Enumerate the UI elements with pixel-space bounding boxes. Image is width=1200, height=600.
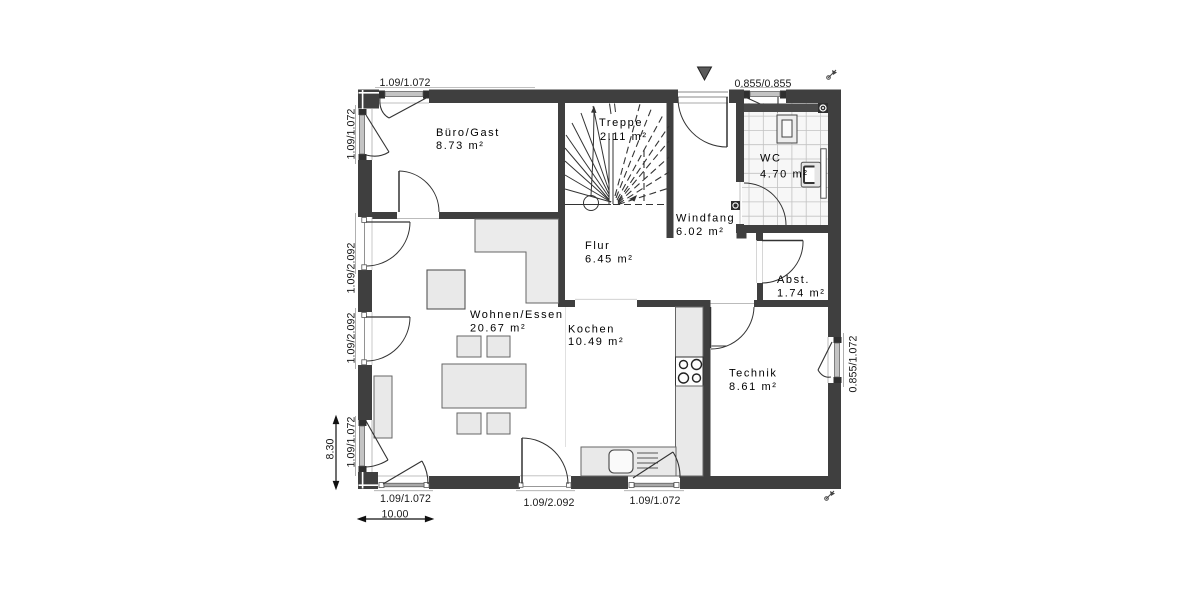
svg-text:1.09/1.072: 1.09/1.072 [346,416,358,467]
svg-text:10.49 m²: 10.49 m² [568,336,624,348]
svg-text:1.74 m²: 1.74 m² [777,288,826,300]
svg-text:Technik: Technik [729,368,778,380]
svg-text:Kochen: Kochen [568,324,615,336]
svg-text:Wohnen/Essen: Wohnen/Essen [470,309,564,321]
svg-text:20.67 m²: 20.67 m² [470,322,526,334]
svg-text:1.09/1.072: 1.09/1.072 [379,77,430,89]
svg-text:0.855/1.072: 0.855/1.072 [848,335,860,392]
svg-text:6.45 m²: 6.45 m² [585,254,634,266]
svg-text:2.11 m²: 2.11 m² [600,131,648,143]
svg-text:1.09/1.072: 1.09/1.072 [346,108,358,159]
svg-text:Windfang: Windfang [676,213,735,225]
svg-text:4.70 m²: 4.70 m² [760,169,809,181]
svg-text:Büro/Gast: Büro/Gast [436,127,500,139]
svg-text:8.73 m²: 8.73 m² [436,140,485,152]
svg-text:1.09/1.072: 1.09/1.072 [629,495,680,507]
svg-text:0.855/0.855: 0.855/0.855 [734,78,791,90]
svg-text:Abst.: Abst. [777,274,810,286]
svg-text:WC: WC [760,153,782,165]
svg-text:8.61 m²: 8.61 m² [729,381,778,393]
svg-text:1.09/1.072: 1.09/1.072 [380,493,431,505]
svg-text:Flur: Flur [585,240,610,252]
svg-text:6.02 m²: 6.02 m² [676,226,725,238]
svg-text:8.30: 8.30 [325,438,337,459]
svg-text:Treppe: Treppe [599,117,643,129]
svg-text:1.09/2.092: 1.09/2.092 [346,312,358,363]
svg-text:1.09/2.092: 1.09/2.092 [523,497,574,509]
svg-text:10.00: 10.00 [381,509,408,521]
svg-text:1.09/2.092: 1.09/2.092 [346,242,358,293]
